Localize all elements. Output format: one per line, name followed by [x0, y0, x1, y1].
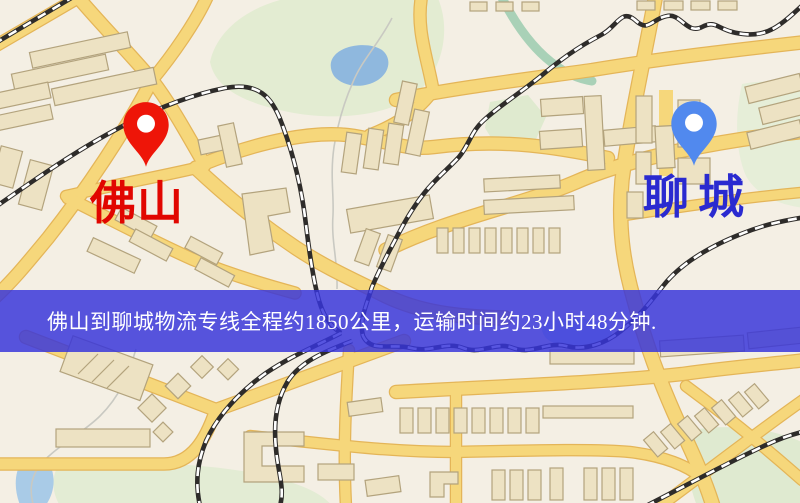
origin-pin-icon: [122, 101, 170, 168]
route-info-banner: 佛山到聊城物流专线全程约1850公里，运输时间约23小时48分钟.: [0, 290, 800, 352]
logistics-route-map: 佛山 聊城 佛山到聊城物流专线全程约1850公里，运输时间约23小时48分钟.: [0, 0, 800, 503]
route-info-text: 佛山到聊城物流专线全程约1850公里，运输时间约23小时48分钟.: [47, 306, 657, 336]
destination-pin-icon: [670, 100, 718, 167]
origin-label: 佛山: [90, 181, 184, 227]
destination-label: 聊城: [643, 175, 753, 221]
map-canvas: [0, 0, 800, 503]
